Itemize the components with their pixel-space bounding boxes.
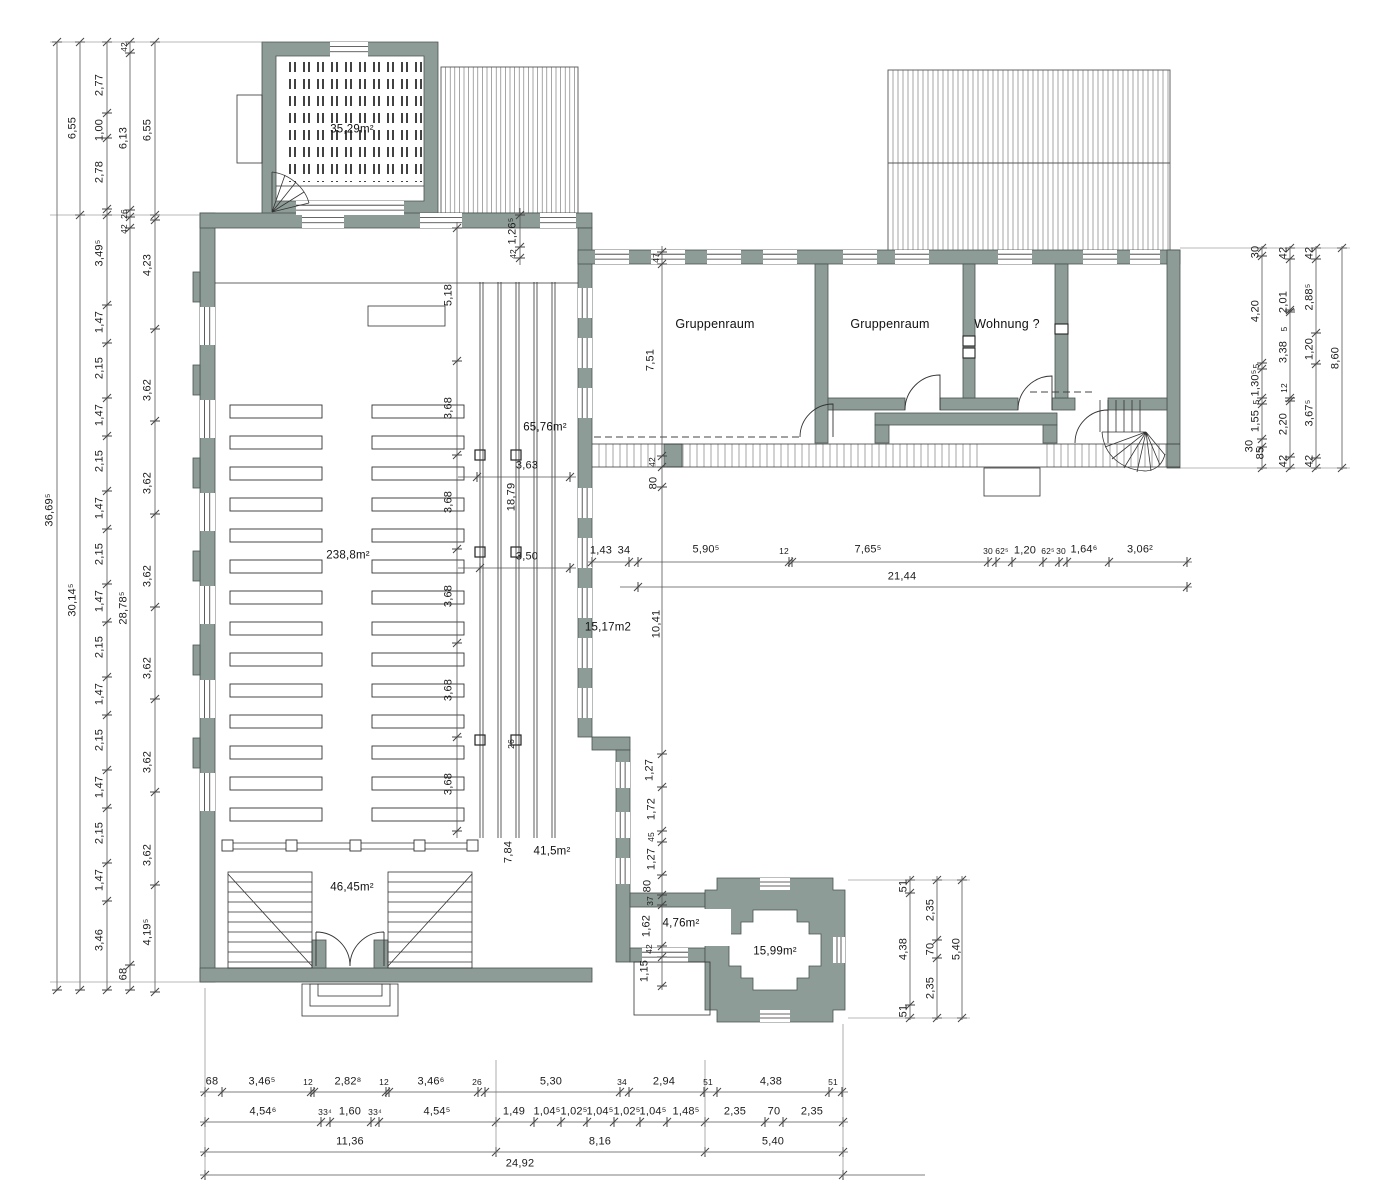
windbreak-wall — [875, 413, 1057, 425]
floor-plan-canvas: Gruppenraum Gruppenraum Wohnung ? 35,29m… — [0, 0, 1392, 1189]
entrance-jamb — [312, 940, 326, 968]
entrance-step — [310, 984, 390, 1006]
terrace-exit-opening — [978, 444, 1044, 468]
rooms-south-wall — [1052, 398, 1075, 410]
door-arc — [1018, 376, 1052, 410]
passage-terrace — [634, 962, 710, 1015]
window-openings — [200, 42, 1160, 962]
door-latch-symbols — [963, 324, 1068, 358]
pilaster — [193, 272, 200, 302]
side-roof-outline — [441, 67, 578, 213]
roof-outlines — [441, 67, 1170, 258]
altar — [368, 306, 445, 326]
wing-east-wall — [1167, 250, 1180, 468]
floor-plan-drawing — [0, 0, 1392, 1189]
stair-treads — [228, 882, 472, 962]
windbreak-wall — [1043, 425, 1057, 443]
dimension-lines — [50, 38, 1350, 1180]
pilaster — [193, 458, 200, 488]
pilaster — [193, 551, 200, 581]
door-arc — [905, 375, 940, 410]
rooms-south-wall — [828, 398, 905, 410]
windbreak-wall — [875, 425, 889, 443]
terrace-step — [984, 468, 1040, 496]
tower-door-opening — [702, 909, 731, 946]
nave-north-wall — [200, 213, 592, 228]
passage-north-wall — [630, 893, 705, 907]
entrance-jamb — [374, 940, 388, 968]
pilaster — [193, 738, 200, 768]
tower-window-south — [760, 1010, 790, 1022]
entrance-step — [318, 984, 382, 996]
nave-south-wall — [200, 968, 592, 982]
southeast-tower-walls — [705, 878, 845, 1022]
tower-window-north — [760, 878, 790, 890]
pilaster — [193, 365, 200, 395]
pilaster — [193, 645, 200, 675]
tower-annex — [237, 95, 262, 163]
pews — [230, 405, 464, 821]
walls — [193, 42, 1180, 1022]
tower-window-east — [833, 937, 845, 963]
entrance-step — [302, 984, 398, 1016]
organ-loft-dashed-lines — [290, 62, 421, 182]
aisle-lines — [480, 282, 555, 838]
rooms-south-wall — [1108, 398, 1167, 410]
partition-wall — [815, 264, 828, 443]
rooms-south-wall — [940, 398, 1018, 410]
partition-wall — [963, 264, 975, 398]
northwest-tower-walls — [262, 42, 438, 215]
detail-lines — [215, 95, 1180, 1016]
wall-step — [592, 737, 630, 750]
